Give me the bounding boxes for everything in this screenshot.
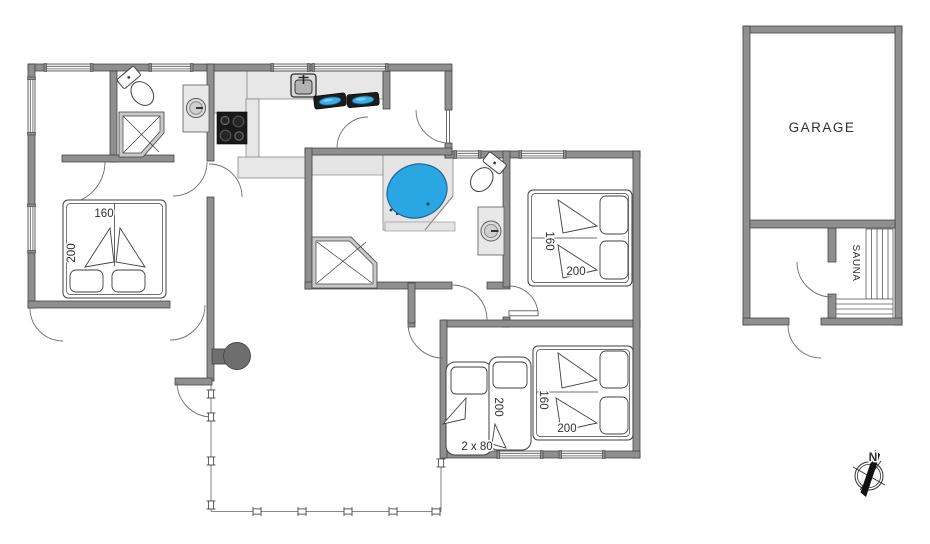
door-leaf: [509, 311, 538, 316]
terrace-post: [253, 507, 261, 516]
door-arc: [173, 162, 207, 196]
bed-double-bedroom1: [63, 200, 166, 298]
kitchen-sink-icon: [291, 74, 316, 97]
bed1-width-label: 160: [94, 208, 113, 220]
sauna-label: SAUNA: [850, 245, 861, 282]
singles-length-label: 200: [492, 397, 504, 416]
wall-porch-stub: [175, 378, 212, 385]
pillow: [600, 397, 628, 434]
wall-garage-top: [743, 26, 902, 33]
wall-garage-right: [895, 26, 902, 325]
wall-garage-left: [743, 26, 750, 325]
shower-icon: [312, 237, 377, 288]
door-arc: [177, 382, 212, 417]
wall-garage-divider: [750, 220, 895, 228]
door-arc: [788, 325, 821, 358]
wall-bedroom1-top: [62, 155, 174, 162]
singles-width-label: 2 x 80: [461, 441, 492, 453]
window: [44, 64, 93, 72]
wall-annex-bottom-left: [743, 318, 789, 325]
terrace: [207, 385, 446, 516]
wall-sauna-upper: [828, 228, 836, 262]
wall-right: [633, 151, 640, 458]
bathroom-1: [117, 66, 209, 157]
pillow: [600, 241, 628, 279]
window: [28, 204, 36, 253]
terrace-post: [207, 457, 216, 465]
garage-label: GARAGE: [789, 120, 856, 135]
bed2-length-label: 200: [566, 266, 585, 278]
window: [559, 451, 605, 459]
door-arc: [170, 305, 205, 340]
terrace-post: [298, 507, 306, 516]
stove-icon: [217, 112, 247, 144]
window: [271, 64, 310, 72]
pillow: [600, 351, 628, 388]
pillow: [112, 270, 145, 292]
wall-hall-left: [408, 283, 415, 323]
north-label: N: [869, 450, 878, 464]
floor-plan-drawing: 160 200 160 200 160 200 200 2 x 80 GARAG…: [0, 0, 930, 544]
wall-bath2-top: [305, 148, 452, 155]
window: [149, 64, 193, 72]
door-arc: [63, 162, 105, 204]
floor-plan-page: 160 200 160 200 160 200 200 2 x 80 GARAG…: [0, 0, 930, 544]
terrace-post: [389, 507, 397, 516]
window: [497, 451, 543, 459]
door-arc: [209, 164, 242, 197]
wall-annex-bottom-right: [821, 318, 902, 325]
wall-kitchen-hall: [383, 71, 390, 109]
wood-stove-icon: [212, 343, 251, 370]
door-arc: [797, 262, 832, 297]
pillow: [493, 362, 527, 388]
terrace-post: [207, 390, 216, 398]
bed3-width-label: 160: [537, 390, 549, 409]
wall-sauna-lower: [828, 294, 836, 318]
bed1-length-label: 200: [66, 243, 78, 262]
door-leaf: [447, 110, 450, 143]
terrace-post: [344, 507, 352, 516]
toilet-icon: [117, 66, 160, 111]
pillow: [600, 196, 628, 234]
window: [454, 151, 481, 159]
wall-bedroom1-bottom: [28, 301, 170, 308]
door-arc: [30, 308, 63, 341]
terrace-post: [207, 501, 216, 509]
door-arc: [452, 285, 487, 320]
pillow: [70, 270, 103, 292]
pillow: [451, 367, 487, 394]
door-arc: [408, 323, 443, 358]
washing-machine-icon: [183, 85, 209, 132]
sauna-benches: [836, 229, 893, 318]
door-arc: [337, 117, 368, 148]
window: [519, 151, 566, 159]
wall-bath1-left: [110, 71, 117, 162]
wall-bedroom3-top: [443, 320, 640, 327]
washing-machine-icon: [478, 207, 504, 255]
bed2-width-label: 160: [543, 231, 555, 250]
bed3-length-label: 200: [557, 423, 576, 435]
door-arc: [416, 110, 449, 143]
shower-icon: [119, 112, 164, 157]
wall-bath2-left: [305, 148, 312, 289]
sink-basin-icon: [346, 92, 379, 108]
window: [28, 77, 36, 135]
wall-hall-right-upper: [445, 71, 452, 110]
terrace-post: [437, 459, 446, 467]
window: [312, 64, 388, 72]
terrace-post: [432, 507, 440, 516]
